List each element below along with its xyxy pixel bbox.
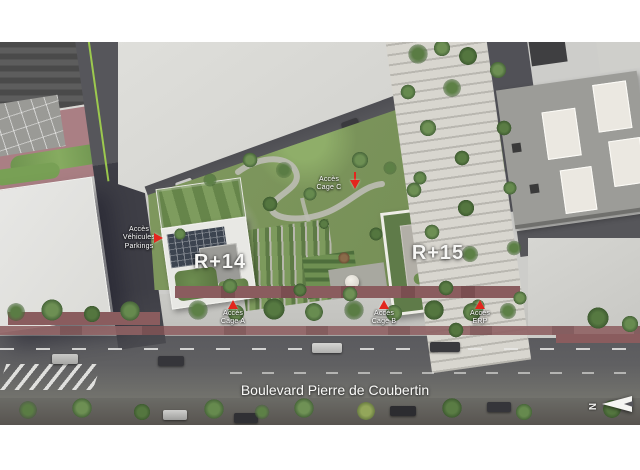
compass-arrow-notch [624,401,633,407]
access-erp-arrow-icon [475,300,485,309]
lane-dash-line-lower [230,372,640,374]
access-cage-a-arrow-icon [228,300,238,309]
building-r15-label: R+15 [405,242,471,265]
skylight-panel [608,137,640,187]
aerial-site-plan: Accès Véhicules Parkings Accès Cage C Ac… [0,0,640,470]
access-cage-b-arrow-icon [379,300,389,309]
crosswalk-hatching [0,364,101,390]
car-boulevard-silver-2 [312,343,342,353]
access-cage-c-arrow-icon [350,180,360,189]
skylight-panel [560,166,598,214]
east-planting-strip [556,334,640,343]
access-cage-b-label: Accès Cage B [363,310,405,327]
skylight-panel [592,80,632,132]
median-tree-row [0,294,640,334]
car-boulevard-dark-1 [158,356,184,366]
access-cage-a-label: Accès Cage A [212,310,254,327]
north-compass: N [590,394,640,422]
access-cage-c-label: Accès Cage C [308,176,350,193]
car-boulevard-silver-1 [52,354,78,364]
street-name-label: Boulevard Pierre de Coubertin [205,382,465,398]
south-tree-row [0,396,640,425]
access-erp-label: Accès ERP [459,310,501,327]
compass-north-letter: N [588,403,599,410]
rendering-area: Accès Véhicules Parkings Accès Cage C Ac… [0,42,640,425]
northeast-light-roof [596,42,640,73]
access-vehicles-arrow-icon [154,233,163,243]
building-r14-label: R+14 [188,251,252,274]
